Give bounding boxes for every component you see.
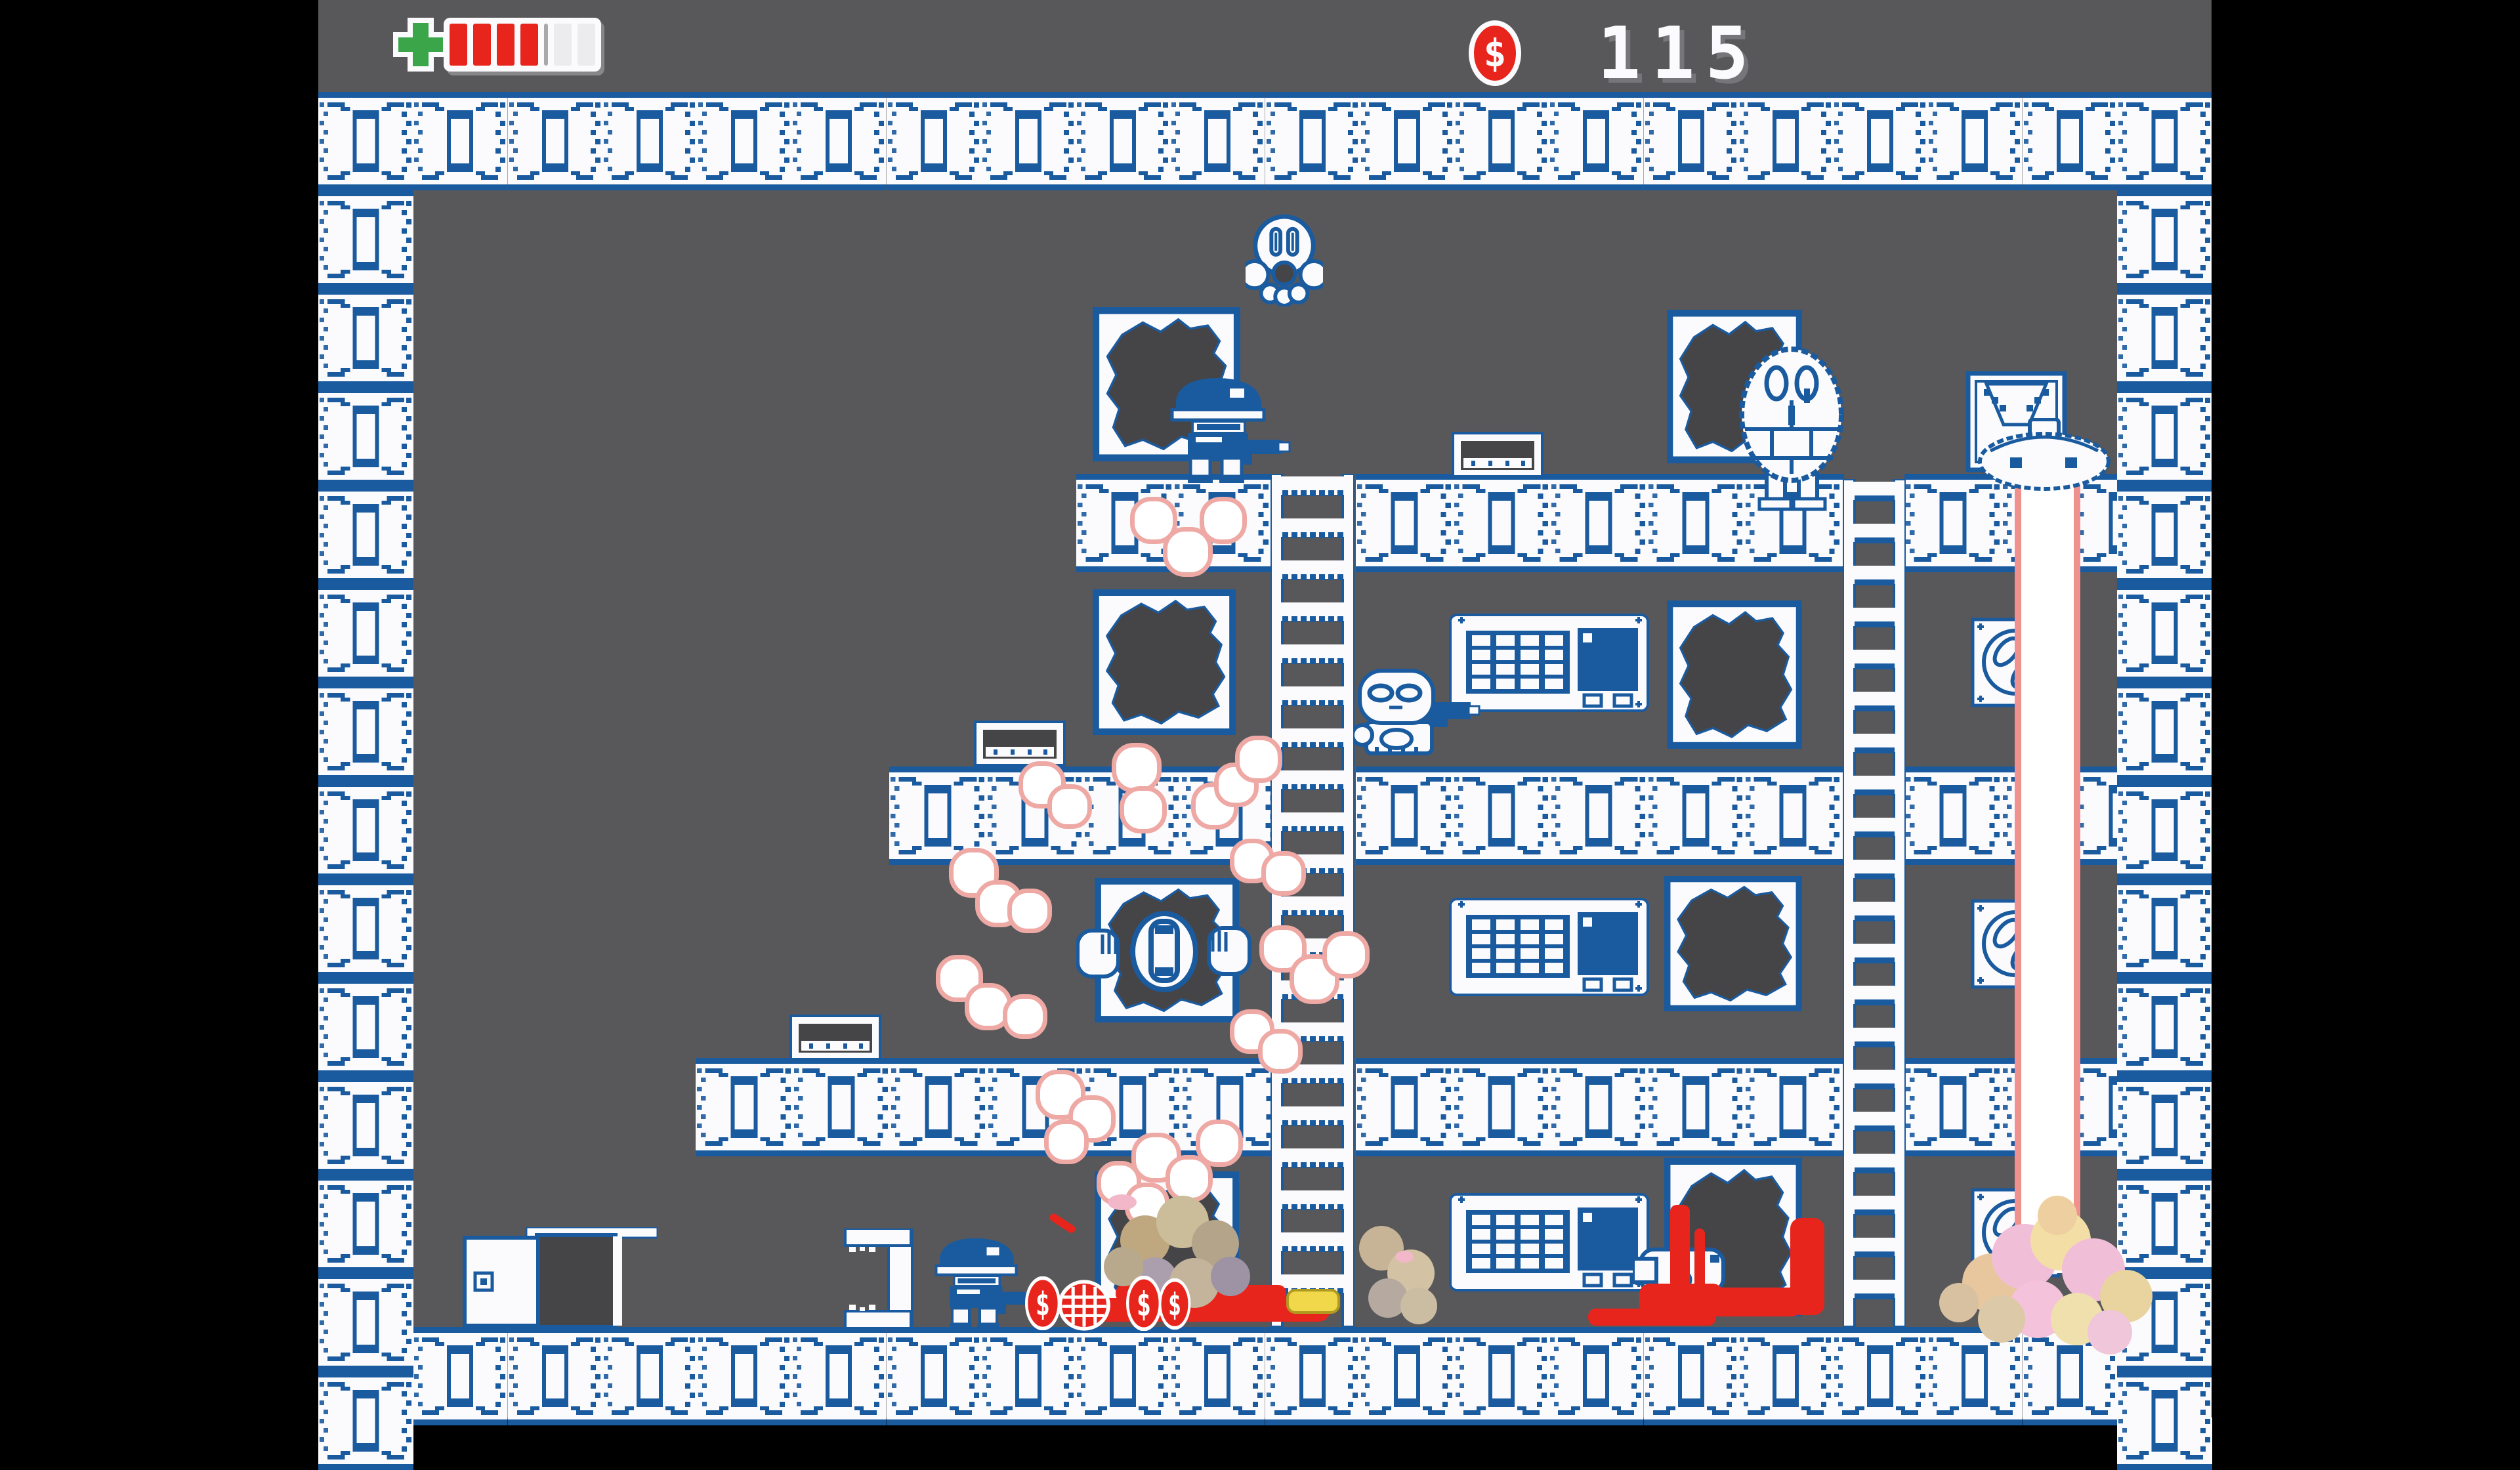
ufo-machine bbox=[1977, 418, 2112, 492]
explosion-bubble bbox=[1007, 889, 1052, 933]
health-segment-filled bbox=[520, 24, 538, 66]
wall-tile bbox=[2117, 781, 2212, 879]
coin-pickup: $ bbox=[1156, 1278, 1193, 1330]
wall-tile bbox=[1738, 1327, 1833, 1425]
explosion-bubble bbox=[1196, 1120, 1243, 1167]
explosion-bubble bbox=[1258, 1029, 1303, 1074]
vent-box bbox=[789, 1015, 881, 1060]
explosion-bubble bbox=[1261, 851, 1306, 896]
wall-tile bbox=[2023, 92, 2117, 190]
explosion-bubble bbox=[1200, 497, 1247, 544]
skull-enemy bbox=[1353, 668, 1481, 759]
player-octopus bbox=[1246, 211, 1323, 306]
wall-tile bbox=[413, 92, 507, 190]
vent-box bbox=[1452, 432, 1543, 478]
control-console bbox=[1449, 1193, 1649, 1291]
health-meter bbox=[392, 16, 601, 73]
wall-tile bbox=[1170, 92, 1265, 190]
health-segment-filled bbox=[450, 24, 467, 66]
floor-tile bbox=[1453, 766, 1550, 865]
floor-platform bbox=[1356, 766, 1844, 865]
score-value: 115 bbox=[1597, 17, 1759, 89]
svg-text:$: $ bbox=[1168, 1287, 1181, 1323]
wall-tile bbox=[2117, 289, 2212, 387]
wall-tile bbox=[318, 1273, 413, 1372]
wall-tile bbox=[981, 92, 1076, 190]
health-divider bbox=[544, 24, 548, 66]
floor-tile bbox=[696, 1058, 793, 1156]
money-counter: $ 115 bbox=[1465, 17, 1759, 89]
blood-splatter bbox=[1694, 1228, 1705, 1289]
svg-text:$: $ bbox=[1484, 31, 1507, 75]
wall-tile bbox=[1644, 1327, 1738, 1425]
wall-tile bbox=[1360, 1327, 1454, 1425]
health-segment-empty bbox=[554, 24, 572, 66]
wall-tile bbox=[2117, 978, 2212, 1076]
wall-tile bbox=[318, 190, 413, 289]
wall-tile bbox=[2117, 387, 2212, 486]
wall-tile bbox=[318, 486, 413, 584]
wall-tile bbox=[318, 1076, 413, 1175]
wall-tile bbox=[1170, 1327, 1265, 1425]
wall-tile bbox=[697, 1327, 791, 1425]
floor-tile bbox=[1647, 1058, 1744, 1156]
floor-tile bbox=[1356, 1058, 1453, 1156]
doorway bbox=[461, 1227, 658, 1327]
wall-tile bbox=[318, 1175, 413, 1273]
breached-wall-block bbox=[1667, 600, 1802, 749]
floor-tile bbox=[1744, 1058, 1841, 1156]
wall-tile bbox=[2117, 682, 2212, 781]
health-bar-container bbox=[444, 18, 601, 72]
coin-icon: $ bbox=[1465, 19, 1525, 87]
svg-text:$: $ bbox=[1137, 1286, 1151, 1324]
wall-tile bbox=[1549, 1327, 1643, 1425]
wall-tile bbox=[2117, 1076, 2212, 1175]
wall-tile bbox=[697, 92, 791, 190]
wall-tile bbox=[318, 781, 413, 879]
explosion-bubble bbox=[1235, 736, 1282, 783]
wall-tile bbox=[318, 978, 413, 1076]
wall-tile bbox=[2117, 584, 2212, 682]
wall-tile bbox=[1360, 92, 1454, 190]
wall-tile bbox=[1076, 1327, 1170, 1425]
wall-tile bbox=[2117, 1372, 2212, 1470]
wall-tile bbox=[508, 92, 602, 190]
floor-tile bbox=[1904, 1058, 2002, 1156]
wall-tile bbox=[318, 92, 413, 190]
wall-tile bbox=[791, 92, 886, 190]
explosion-bubble bbox=[1120, 786, 1167, 833]
explosion-bubble bbox=[1044, 1120, 1089, 1164]
health-cross-icon bbox=[392, 16, 449, 73]
wall-tile bbox=[1644, 92, 1738, 190]
floor-tile bbox=[1453, 474, 1550, 572]
wall-tile bbox=[318, 289, 413, 387]
health-segment-filled bbox=[497, 24, 514, 66]
bracket-pillar bbox=[844, 1228, 916, 1328]
floor-tile bbox=[793, 1058, 890, 1156]
wall-tile bbox=[508, 1327, 602, 1425]
floor-tile bbox=[1356, 474, 1453, 572]
wall-tile bbox=[981, 1327, 1076, 1425]
wall-tile bbox=[1265, 1327, 1360, 1425]
explosion-cloud bbox=[2038, 1196, 2077, 1235]
wall-tile bbox=[1833, 1327, 1927, 1425]
breached-wall-block bbox=[1093, 589, 1236, 735]
digger-character bbox=[1076, 911, 1252, 993]
floor-tile bbox=[1647, 766, 1744, 865]
yellow-item-pickup bbox=[1286, 1289, 1340, 1314]
explosion-bubble bbox=[1047, 784, 1092, 829]
wall-tile bbox=[1076, 92, 1170, 190]
explosion-bubble bbox=[1322, 931, 1370, 978]
wall-tile bbox=[1738, 92, 1833, 190]
wall-tile bbox=[602, 92, 697, 190]
wall-tile bbox=[887, 92, 981, 190]
blood-splatter bbox=[1670, 1205, 1690, 1289]
health-segment-filled bbox=[473, 24, 491, 66]
letterbox-right bbox=[2212, 0, 2520, 1417]
floor-tile bbox=[1744, 766, 1841, 865]
wall-tile bbox=[318, 1372, 413, 1470]
wall-tile bbox=[1265, 92, 1360, 190]
soldier-enemy-1 bbox=[1156, 371, 1291, 484]
floor-platform bbox=[1904, 766, 2020, 865]
wall-tile bbox=[1549, 92, 1643, 190]
smoke-puff bbox=[1211, 1257, 1250, 1296]
wall-tile bbox=[791, 1327, 886, 1425]
floor-tile bbox=[1550, 1058, 1647, 1156]
floor-platform bbox=[696, 1058, 1270, 1156]
pink-smoke bbox=[1108, 1194, 1137, 1210]
floor-tile bbox=[1550, 474, 1647, 572]
floor-tile bbox=[1453, 1058, 1550, 1156]
wall-tile bbox=[2117, 92, 2212, 190]
floor-tile bbox=[1904, 766, 2002, 865]
explosion-cloud bbox=[1978, 1295, 2025, 1343]
wall-tile bbox=[1833, 92, 1927, 190]
wall-tile bbox=[2117, 879, 2212, 978]
ladder bbox=[1270, 474, 1354, 1327]
control-console bbox=[1449, 898, 1649, 996]
wall-tile bbox=[1454, 1327, 1549, 1425]
smoke-puff bbox=[1400, 1288, 1437, 1324]
letterbox-left bbox=[0, 0, 318, 1417]
wall-tile bbox=[2117, 190, 2212, 289]
breached-wall-block bbox=[1664, 876, 1802, 1011]
wall-tile bbox=[887, 1327, 981, 1425]
egg-enemy bbox=[1736, 343, 1847, 513]
wall-tile bbox=[318, 879, 413, 978]
explosion-bubble bbox=[1112, 743, 1162, 793]
svg-text:$: $ bbox=[1036, 1286, 1050, 1323]
wall-tile bbox=[318, 682, 413, 781]
pink-smoke bbox=[1395, 1251, 1414, 1263]
vent-box bbox=[974, 721, 1066, 766]
blood-splatter bbox=[1680, 1288, 1801, 1316]
explosion-bubble bbox=[1003, 994, 1047, 1039]
wall-tile bbox=[318, 387, 413, 486]
explosion-cloud bbox=[2088, 1310, 2132, 1354]
ladder bbox=[1843, 479, 1906, 1327]
wall-tile bbox=[1927, 92, 2022, 190]
explosion-cloud bbox=[1939, 1283, 1979, 1322]
floor-tile bbox=[1356, 766, 1453, 865]
wall-tile bbox=[318, 584, 413, 682]
floor-tile bbox=[1550, 766, 1647, 865]
wall-tile bbox=[413, 1327, 507, 1425]
floor-platform bbox=[1356, 1058, 1844, 1156]
wall-tile bbox=[2117, 1175, 2212, 1273]
health-segment-empty bbox=[577, 24, 595, 66]
energy-beam bbox=[2015, 482, 2080, 1273]
wall-tile bbox=[1454, 92, 1549, 190]
floor-tile bbox=[1647, 474, 1744, 572]
floor-platform bbox=[1904, 1058, 2020, 1156]
coin-pickup bbox=[1057, 1280, 1112, 1331]
floor-tile bbox=[890, 1058, 987, 1156]
wall-tile bbox=[2117, 486, 2212, 584]
game-viewport[interactable]: $ 115 bbox=[0, 0, 2520, 1417]
wall-tile bbox=[602, 1327, 697, 1425]
